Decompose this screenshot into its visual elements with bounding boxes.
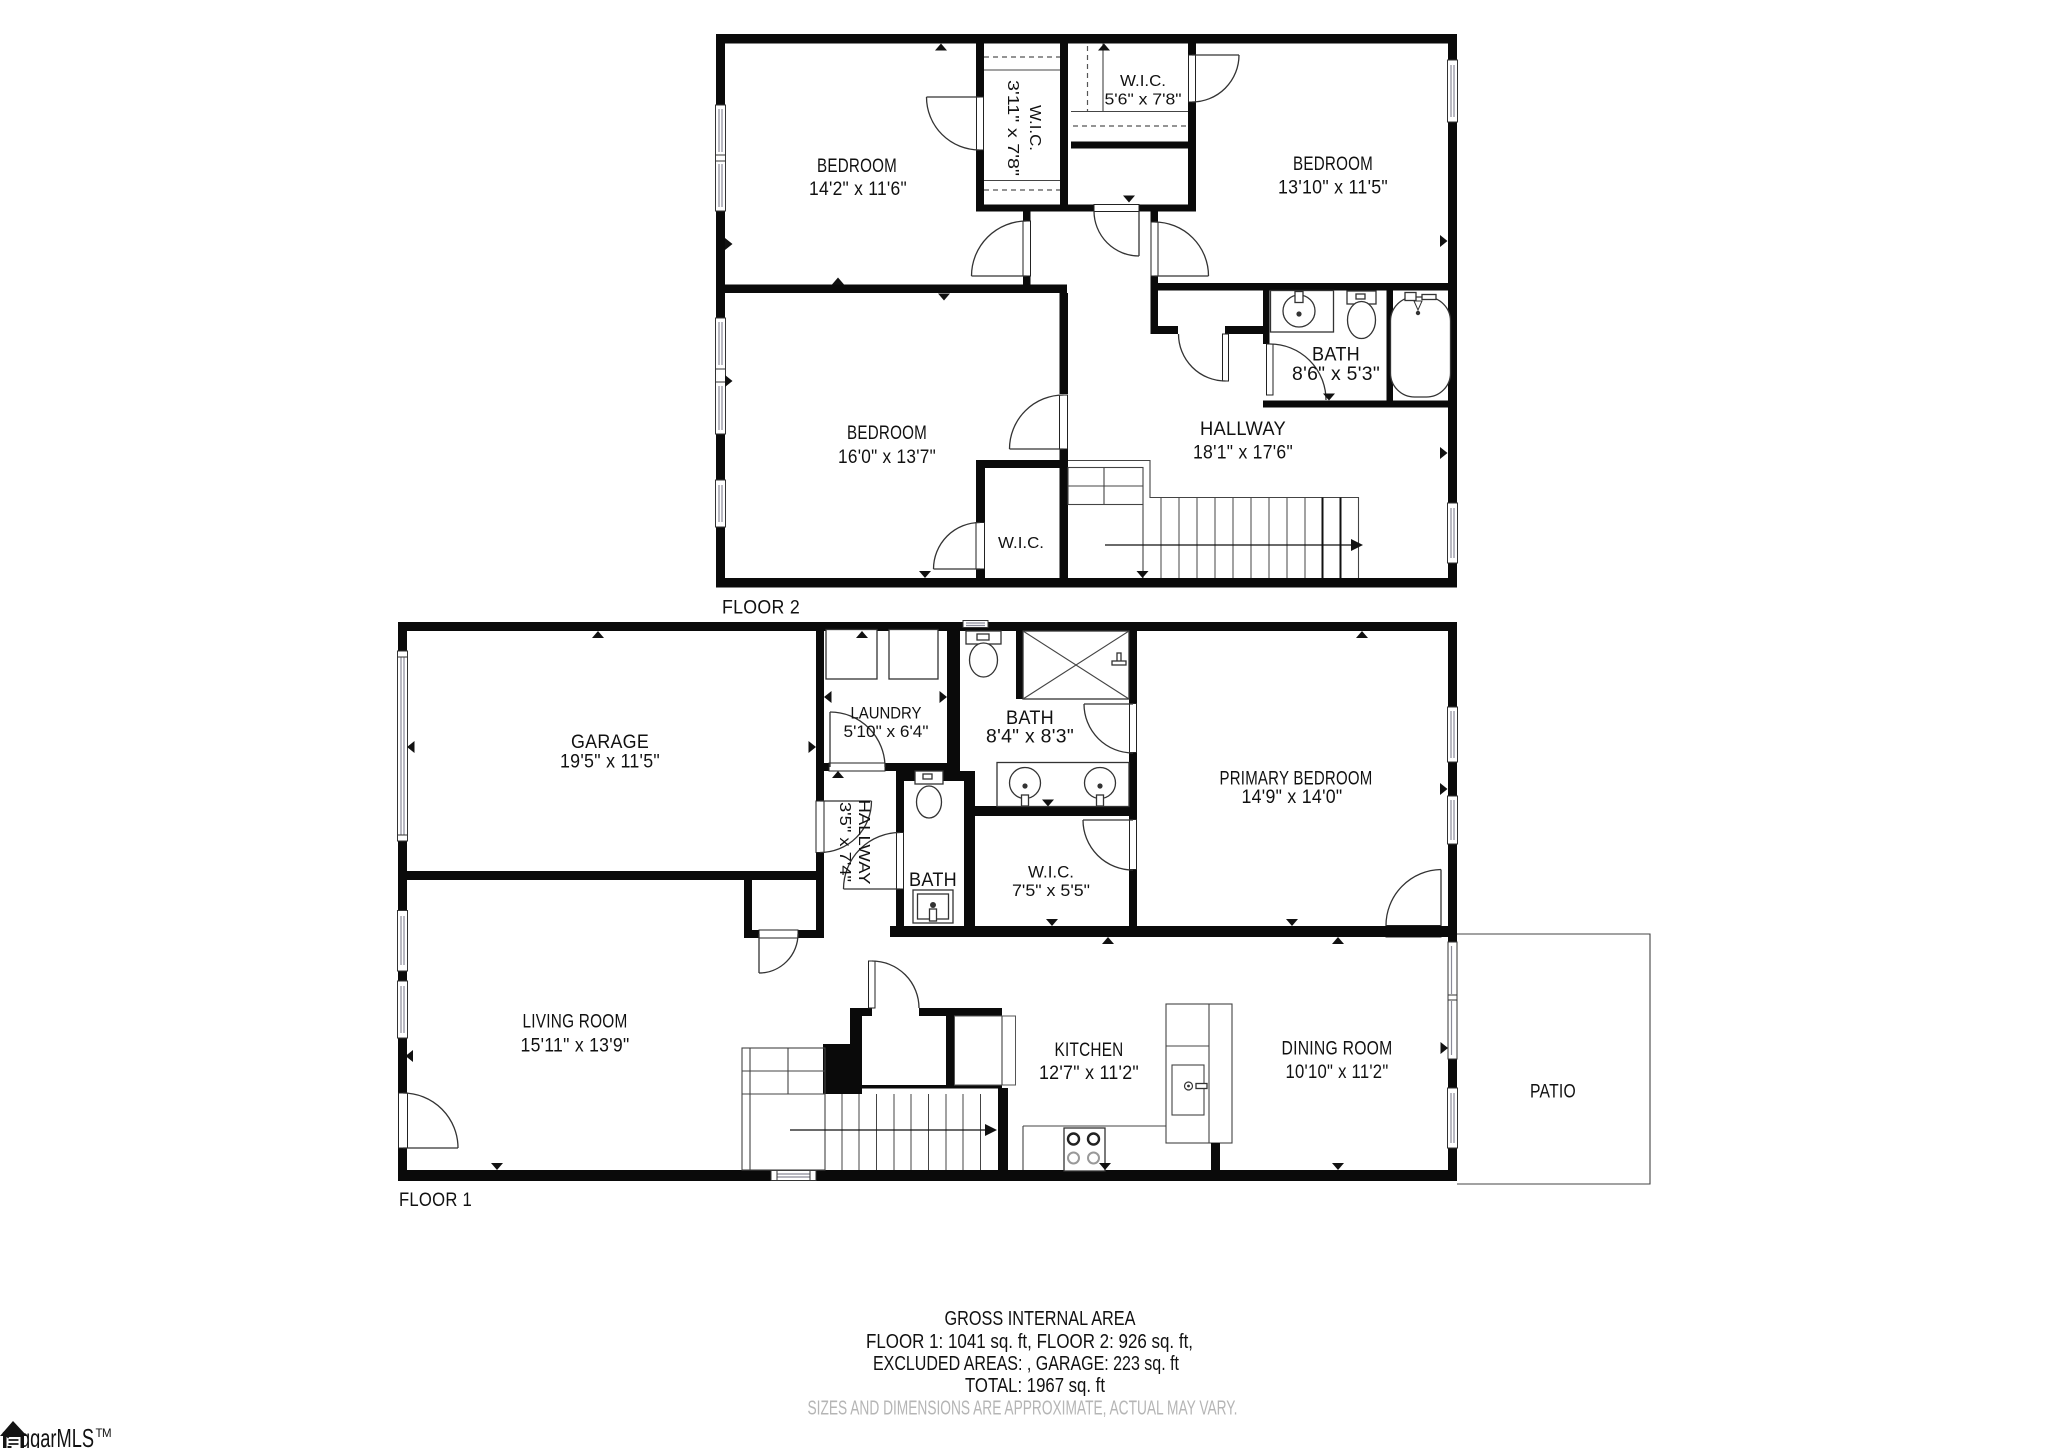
svg-text:16'0" x 13'7": 16'0" x 13'7" xyxy=(838,446,936,468)
svg-text:EXCLUDED AREAS: , GARAGE: 223: EXCLUDED AREAS: , GARAGE: 223 sq. ft xyxy=(873,1353,1179,1375)
svg-text:PATIO: PATIO xyxy=(1530,1081,1576,1103)
svg-text:13'10" x 11'5": 13'10" x 11'5" xyxy=(1278,177,1388,199)
svg-text:FLOOR 1: FLOOR 1 xyxy=(399,1189,472,1211)
svg-text:BEDROOM: BEDROOM xyxy=(1293,153,1373,175)
svg-text:19'5" x 11'5": 19'5" x 11'5" xyxy=(560,751,660,773)
svg-text:3'5" x 7'4": 3'5" x 7'4" xyxy=(836,802,853,882)
svg-text:TM: TM xyxy=(96,1428,112,1440)
svg-text:10'10" x 11'2": 10'10" x 11'2" xyxy=(1286,1061,1389,1083)
svg-text:SIZES AND DIMENSIONS ARE APPRO: SIZES AND DIMENSIONS ARE APPROXIMATE, AC… xyxy=(808,1398,1238,1420)
svg-text:14'2" x 11'6": 14'2" x 11'6" xyxy=(809,178,907,200)
svg-text:5'6" x 7'8": 5'6" x 7'8" xyxy=(1105,92,1182,109)
svg-text:8'4" x 8'3": 8'4" x 8'3" xyxy=(986,726,1074,748)
svg-text:DINING ROOM: DINING ROOM xyxy=(1282,1038,1393,1060)
svg-text:FLOOR 2: FLOOR 2 xyxy=(722,597,800,619)
svg-text:7'5" x 5'5": 7'5" x 5'5" xyxy=(1012,881,1090,900)
svg-text:W.I.C.: W.I.C. xyxy=(1026,105,1043,151)
svg-text:HALLWAY: HALLWAY xyxy=(1200,418,1286,440)
svg-text:TOTAL: 1967 sq. ft: TOTAL: 1967 sq. ft xyxy=(965,1375,1105,1397)
svg-text:BEDROOM: BEDROOM xyxy=(847,422,927,444)
svg-text:BEDROOM: BEDROOM xyxy=(817,155,897,177)
svg-text:LIVING ROOM: LIVING ROOM xyxy=(523,1011,628,1033)
svg-text:HALLWAY: HALLWAY xyxy=(855,800,872,885)
svg-text:FLOOR 1: 1041 sq. ft, FLOOR 2:: FLOOR 1: 1041 sq. ft, FLOOR 2: 926 sq. f… xyxy=(866,1331,1193,1353)
svg-text:BATH: BATH xyxy=(909,869,957,891)
svg-text:KITCHEN: KITCHEN xyxy=(1055,1039,1124,1061)
svg-text:GROSS INTERNAL AREA: GROSS INTERNAL AREA xyxy=(945,1308,1137,1330)
svg-text:3'11" x 7'8": 3'11" x 7'8" xyxy=(1004,80,1021,176)
svg-text:LAUNDRY: LAUNDRY xyxy=(851,704,922,723)
svg-text:5'10" x 6'4": 5'10" x 6'4" xyxy=(844,722,929,741)
svg-text:8'6" x 5'3": 8'6" x 5'3" xyxy=(1292,363,1380,385)
svg-text:W.I.C.: W.I.C. xyxy=(1028,863,1074,882)
svg-text:W.I.C.: W.I.C. xyxy=(998,535,1044,552)
svg-text:14'9" x 14'0": 14'9" x 14'0" xyxy=(1242,786,1343,808)
svg-text:12'7" x 11'2": 12'7" x 11'2" xyxy=(1039,1062,1139,1084)
svg-text:ggarMLS: ggarMLS xyxy=(20,1423,94,1448)
svg-text:15'11" x 13'9": 15'11" x 13'9" xyxy=(521,1035,630,1057)
svg-text:18'1" x 17'6": 18'1" x 17'6" xyxy=(1193,442,1293,464)
svg-text:W.I.C.: W.I.C. xyxy=(1120,73,1166,90)
